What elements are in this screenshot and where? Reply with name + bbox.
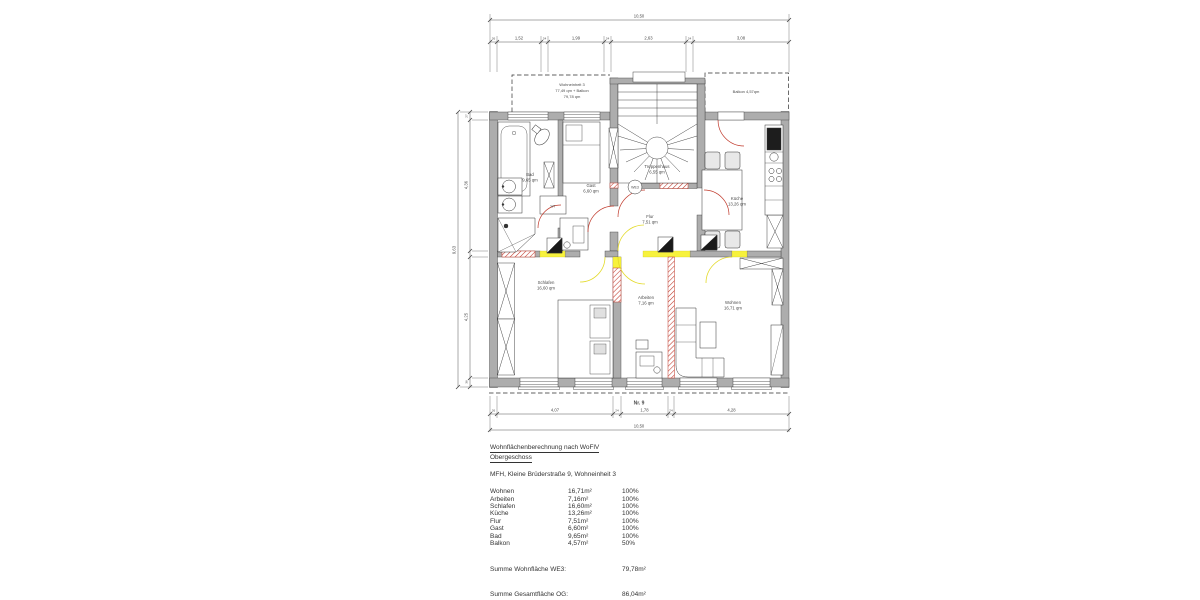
row-pct: 100%	[622, 510, 662, 517]
table-row: Balkon 4,57m² 50%	[490, 540, 720, 547]
room-area-treppenhaus: 6,55 qm	[649, 170, 665, 175]
dimension-labels-top: 10,50 26 1,52 24 1,99 24 2,63 24 3,08	[492, 14, 746, 41]
double-bed	[558, 300, 613, 378]
dim-left-seg-1: 4,36	[464, 180, 469, 189]
sum-we-value: 79,78m²	[622, 566, 646, 573]
dim-bottom-seg-4: 24	[669, 409, 673, 413]
row-room: Küche	[490, 510, 568, 517]
red-wall-stub	[610, 183, 618, 188]
balcony-label: Balkon 4,57qm	[733, 89, 760, 94]
dim-top-seg-2: 24	[543, 37, 547, 41]
kitchen-faucet	[770, 153, 778, 161]
floorplan-document: 10,50 26 1,52 24 1,99 24 2,63 24 3,08 9,…	[0, 0, 1200, 600]
row-area: 16,60m²	[568, 503, 622, 510]
dim-top-seg-4: 24	[606, 37, 610, 41]
table-row: Arbeiten 7,16m² 100%	[490, 496, 720, 503]
room-label-treppenhaus: Treppenhaus	[644, 164, 669, 169]
dimension-labels-left: 9,63 27 4,36 4,25 36	[452, 114, 469, 384]
door-arc-gast	[588, 206, 614, 232]
shaft-box-wohnen-v	[772, 269, 783, 305]
door-arc-we3-entry	[618, 190, 645, 217]
window-bottom-5	[732, 378, 772, 390]
red-wall-schlafen	[613, 268, 621, 302]
row-pct: 100%	[622, 503, 662, 510]
door-sill	[658, 237, 673, 252]
dim-top-seg-3: 1,99	[572, 36, 581, 41]
row-room: Schlafen	[490, 503, 568, 510]
toilet	[532, 125, 553, 148]
row-area: 7,51m²	[568, 518, 622, 525]
wall-gast-flur-upper	[610, 188, 618, 206]
table-row: Küche 13,26m² 100%	[490, 510, 720, 517]
floorplan-drawing: 10,50 26 1,52 24 1,99 24 2,63 24 3,08 9,…	[440, 0, 820, 440]
sum-we-label: Summe Wohnfläche WE3:	[490, 566, 622, 573]
table-row: Schlafen 16,60m² 100%	[490, 503, 720, 510]
schlafen-furniture	[558, 300, 613, 378]
table-title: Wohnflächenberechnung nach WoFlV	[490, 444, 599, 453]
area-table: Wohnflächenberechnung nach WoFlV Oberges…	[490, 444, 720, 598]
dim-bottom-total: 10,50	[634, 424, 645, 429]
room-area-arbeiten: 7,16 qm	[638, 301, 654, 306]
sink	[498, 196, 522, 213]
table-subtitle: Obergeschoss	[490, 454, 532, 463]
room-area-kueche: 13,26 qm	[728, 202, 746, 207]
plan-svg: 10,50 26 1,52 24 1,99 24 2,63 24 3,08 9,…	[440, 0, 820, 440]
wall-corridor-3	[605, 251, 618, 257]
row-pct: 100%	[622, 488, 662, 495]
room-label-bad: Bad	[526, 172, 534, 177]
row-pct: 100%	[622, 496, 662, 503]
row-area: 13,26m²	[568, 510, 622, 517]
red-wall-arbeiten-wohnen	[668, 257, 675, 378]
dim-top-total: 10,50	[634, 14, 645, 19]
row-area: 4,57m²	[568, 540, 622, 547]
row-room: Wohnen	[490, 488, 568, 495]
wall-gast-flur-lower	[610, 232, 618, 251]
bath-fixtures	[498, 122, 566, 252]
dimension-chain-top	[488, 14, 791, 72]
dimension-labels-bottom: Nr. 9 26 4,07 24 1,78 24 4,28 10,50	[492, 401, 736, 429]
room-label-schlafen: Schlafen	[538, 280, 555, 285]
red-wall-stair-bottom	[660, 183, 688, 189]
room-label-flur: Flur	[646, 214, 654, 219]
room-area-flur: 7,51 qm	[642, 220, 658, 225]
pilaster-gast	[609, 128, 618, 168]
desk-gast	[560, 218, 588, 250]
dim-bottom-seg-3: 1,78	[640, 408, 649, 413]
row-pct: 100%	[622, 518, 662, 525]
window-bottom-3	[626, 378, 664, 390]
dimension-chain-left	[456, 110, 488, 389]
tv-board	[771, 325, 783, 375]
shower	[498, 218, 535, 252]
row-area: 9,65m²	[568, 533, 622, 540]
window-bottom-4	[679, 378, 719, 390]
room-area-bad: 9,65 qm	[522, 178, 538, 183]
unit-area-1: 77,49 qm + Balkon	[555, 88, 588, 93]
chimney-box	[498, 319, 515, 375]
desk-arbeiten	[636, 352, 662, 378]
door-arc-balcony	[718, 120, 744, 146]
window-top-gast	[564, 112, 600, 120]
stair-landing-top	[633, 72, 685, 82]
dim-bottom-seg-5: 4,28	[727, 408, 736, 413]
door-arc-wohnen-old	[706, 257, 732, 283]
row-area: 16,71m²	[568, 488, 622, 495]
stair-eye	[646, 137, 668, 159]
room-area-gast: 6,60 qm	[583, 189, 599, 194]
dim-top-seg-0: 26	[492, 37, 496, 41]
table-row: Flur 7,51m² 100%	[490, 518, 720, 525]
window-bottom-1	[519, 378, 560, 390]
window-bottom-2	[574, 378, 614, 390]
dim-bottom-seg-2: 24	[615, 409, 619, 413]
row-room: Bad	[490, 533, 568, 540]
row-room: Gast	[490, 525, 568, 532]
room-label-kueche: Küche	[731, 196, 744, 201]
we-badge-text: WE3	[631, 186, 639, 190]
row-area: 6,60m²	[568, 525, 622, 532]
wall-corridor-2	[565, 251, 580, 257]
wall-corridor-5	[747, 251, 781, 257]
table-address: MFH, Kleine Brüderstraße 9, Wohneinheit …	[490, 471, 720, 478]
pilaster-bad	[544, 162, 554, 188]
table-row: Wohnen 16,71m² 100%	[490, 488, 720, 495]
yellow-wall-segment	[732, 251, 747, 257]
dim-bottom-seg-1: 4,07	[551, 408, 560, 413]
dim-top-seg-7: 3,08	[737, 36, 746, 41]
door-arc-arbeiten-old	[618, 257, 645, 284]
shaft-box-wohnen-h	[740, 258, 783, 269]
room-label-arbeiten: Arbeiten	[638, 295, 655, 300]
dim-left-seg-0: 27	[465, 114, 469, 118]
dim-extension-lines	[490, 14, 789, 72]
cabinet-arbeiten	[636, 340, 648, 349]
sum-og-value: 86,04m²	[622, 591, 646, 598]
table-row: Gast 6,60m² 100%	[490, 525, 720, 532]
room-label-gast: Gast	[586, 183, 596, 188]
row-pct: 50%	[622, 540, 662, 547]
dim-left-seg-3: 36	[465, 380, 469, 384]
window-top-bad	[508, 112, 548, 120]
unit-info-box: Wohneinheit 3 77,49 qm + Balkon 79,78 qm	[555, 82, 588, 99]
door-sill	[701, 235, 717, 250]
dim-bottom-seg-0: 26	[492, 409, 496, 413]
house-number-label: Nr. 9	[634, 401, 645, 407]
wall-top-right	[705, 112, 789, 120]
kitchen-sink	[767, 128, 781, 150]
room-area-schlafen: 16,60 qm	[537, 286, 555, 291]
sum-row-og: Summe Gesamtfläche OG: 86,04m²	[490, 591, 720, 598]
dim-extension-lines	[460, 112, 488, 387]
we-badge: WE3	[628, 180, 642, 194]
sum-row-we: Summe Wohnfläche WE3: 79,78m²	[490, 566, 720, 573]
dim-left-seg-2: 4,25	[464, 312, 469, 321]
dim-top-seg-5: 2,63	[644, 36, 653, 41]
unit-boundary-dashed	[512, 75, 610, 112]
wohnen-furniture	[676, 308, 783, 377]
sum-og-label: Summe Gesamtfläche OG:	[490, 591, 622, 598]
row-pct: 100%	[622, 525, 662, 532]
unit-area-2: 79,78 qm	[564, 94, 581, 99]
unit-name: Wohneinheit 3	[559, 82, 585, 87]
fixture-label-wt: WT	[551, 205, 556, 209]
room-area-wohnen: 16,71 qm	[724, 306, 742, 311]
row-room: Arbeiten	[490, 496, 568, 503]
wall-bad-gast-upper	[558, 120, 563, 204]
row-area: 7,16m²	[568, 496, 622, 503]
dim-top-seg-6: 24	[688, 37, 692, 41]
balcony-door-opening	[718, 112, 744, 120]
door-sill	[547, 238, 562, 253]
door-arc-flur-old	[618, 225, 644, 251]
dim-left-total: 9,63	[452, 245, 457, 254]
shaft-box-kitchen	[767, 215, 783, 248]
coffee-table	[700, 322, 716, 348]
dim-top-seg-1: 1,52	[515, 36, 524, 41]
wall-corridor-4	[690, 251, 732, 257]
sink	[498, 178, 522, 195]
door-arc-schlafen-old	[580, 257, 605, 282]
row-room: Flur	[490, 518, 568, 525]
dim-lines	[458, 112, 470, 387]
table-row: Bad 9,65m² 100%	[490, 533, 720, 540]
chimney-box	[498, 263, 515, 319]
row-pct: 100%	[622, 533, 662, 540]
row-room: Balkon	[490, 540, 568, 547]
bed-gast	[563, 122, 600, 183]
arbeiten-furniture	[636, 340, 662, 378]
room-label-wohnen: Wohnen	[725, 300, 742, 305]
wall-left	[490, 112, 498, 388]
